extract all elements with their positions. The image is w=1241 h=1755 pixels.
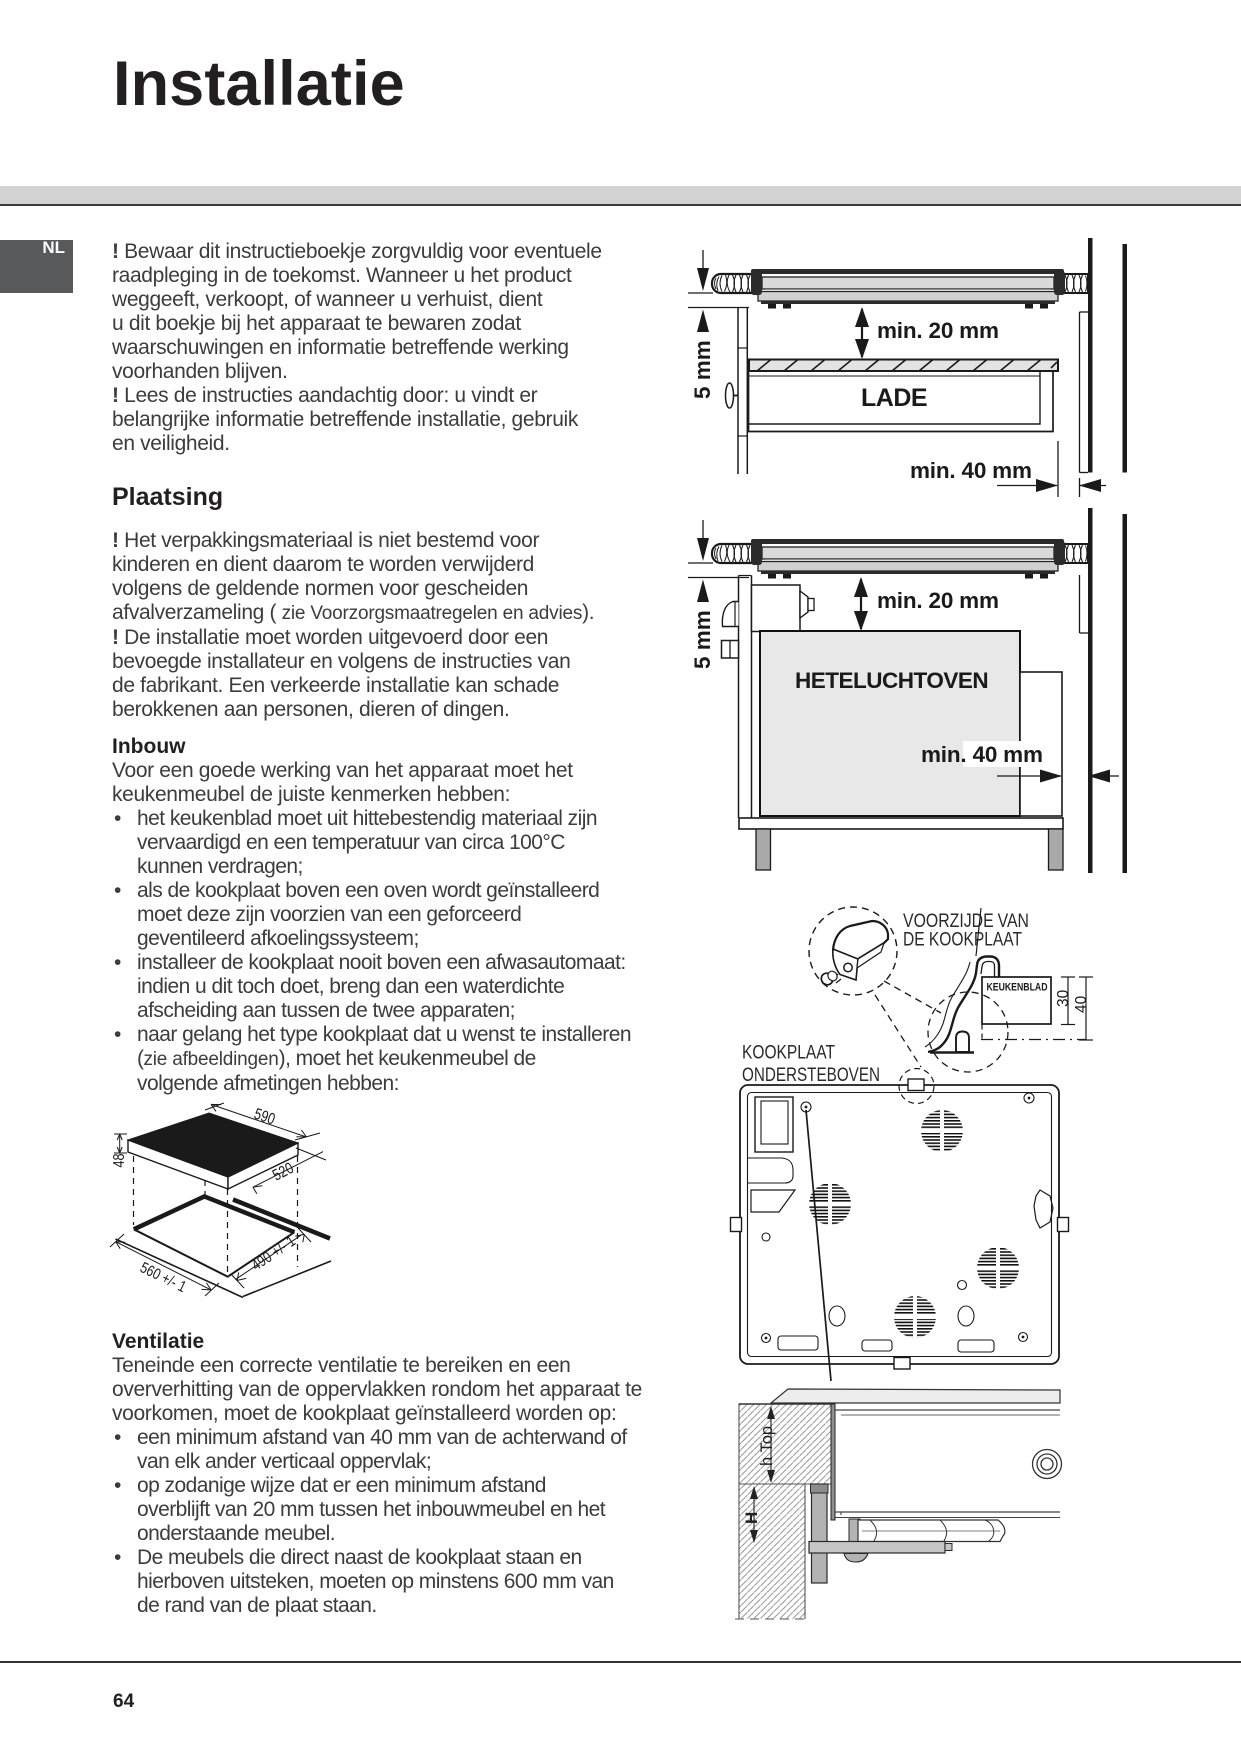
svg-text:min. 40 mm: min. 40 mm xyxy=(910,458,1032,483)
svg-text:min. 20 mm: min. 20 mm xyxy=(877,588,999,613)
svg-text:min. 20 mm: min. 20 mm xyxy=(877,318,999,343)
svg-text:560 +/- 1: 560 +/- 1 xyxy=(137,1259,188,1296)
svg-text:HETELUCHTOVEN: HETELUCHTOVEN xyxy=(795,668,988,693)
svg-text:LADE: LADE xyxy=(861,384,927,412)
svg-text:30: 30 xyxy=(1055,989,1072,1007)
svg-text:H: H xyxy=(742,1512,761,1524)
svg-text:KOOKPLAAT: KOOKPLAAT xyxy=(742,1042,835,1064)
svg-text:h Top: h Top xyxy=(758,1426,776,1466)
svg-text:DE KOOKPLAAT: DE KOOKPLAAT xyxy=(903,929,1022,951)
svg-text:48: 48 xyxy=(111,1153,128,1167)
svg-text:490 +/- 1: 490 +/- 1 xyxy=(249,1233,299,1274)
svg-text:40: 40 xyxy=(1073,995,1090,1013)
svg-text:5 mm: 5 mm xyxy=(690,610,715,669)
svg-text:min. 40 mm: min. 40 mm xyxy=(921,742,1043,767)
svg-text:ONDERSTEBOVEN: ONDERSTEBOVEN xyxy=(742,1064,880,1086)
svg-text:5 mm: 5 mm xyxy=(690,340,715,399)
svg-text:KEUKENBLAD: KEUKENBLAD xyxy=(987,982,1048,994)
